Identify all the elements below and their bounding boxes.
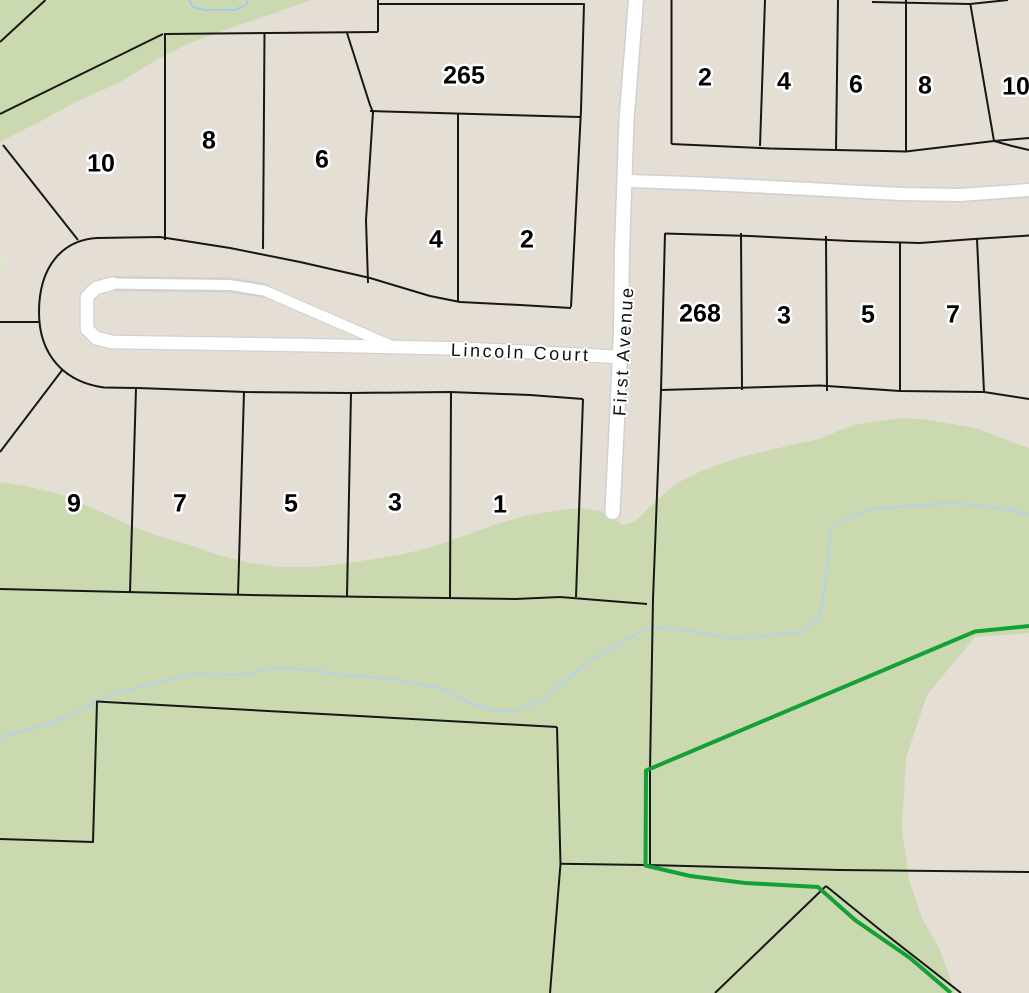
svg-text:5: 5 <box>861 301 875 329</box>
svg-text:10: 10 <box>1002 73 1029 101</box>
svg-text:5: 5 <box>284 490 298 518</box>
svg-text:2: 2 <box>520 226 534 254</box>
svg-text:1: 1 <box>493 491 507 519</box>
svg-text:265: 265 <box>443 62 485 90</box>
svg-text:9: 9 <box>67 490 81 518</box>
svg-text:3: 3 <box>388 489 402 517</box>
svg-text:4: 4 <box>777 68 791 96</box>
svg-text:6: 6 <box>849 71 863 99</box>
svg-text:8: 8 <box>202 127 216 155</box>
svg-text:6: 6 <box>315 146 329 174</box>
svg-text:2: 2 <box>698 64 712 92</box>
svg-text:10: 10 <box>87 150 115 178</box>
svg-text:4: 4 <box>429 226 443 254</box>
svg-text:7: 7 <box>946 301 960 329</box>
svg-text:3: 3 <box>777 302 791 330</box>
svg-text:7: 7 <box>173 490 187 518</box>
svg-text:268: 268 <box>679 300 721 328</box>
svg-text:8: 8 <box>918 72 932 100</box>
